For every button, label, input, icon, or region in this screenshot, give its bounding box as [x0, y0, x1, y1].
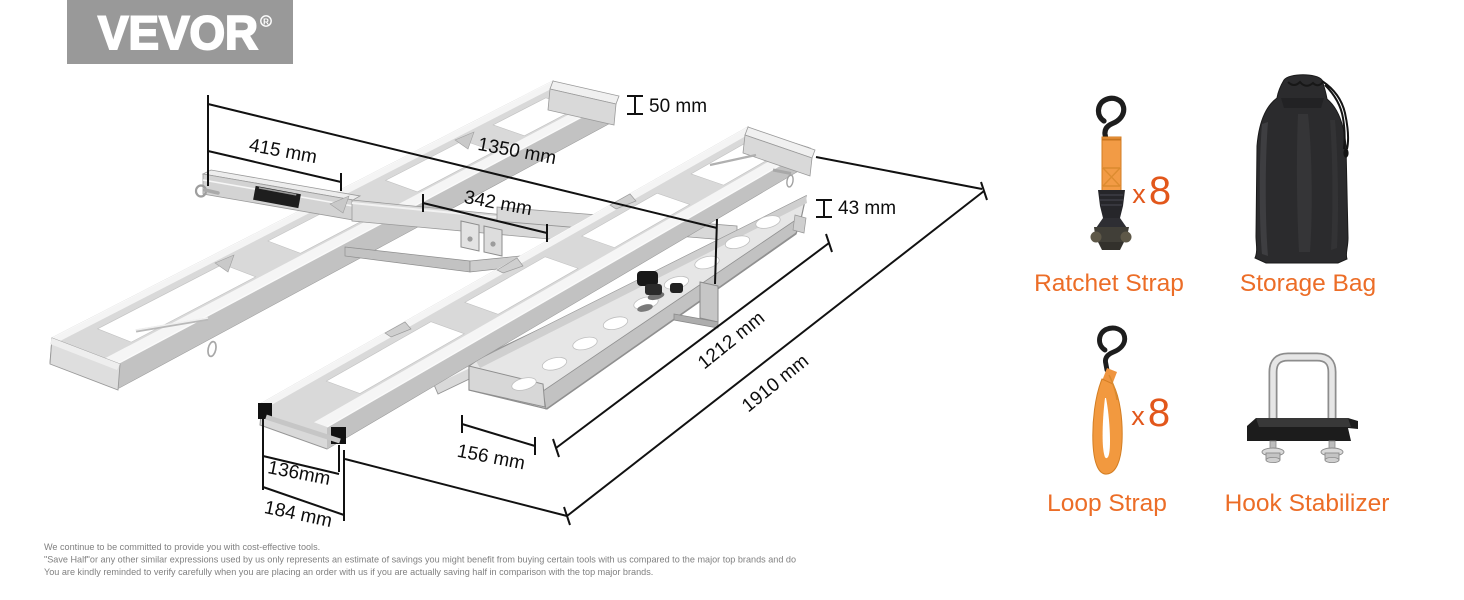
svg-text:50 mm: 50 mm — [649, 96, 707, 117]
svg-text:You are kindly reminded to ver: You are kindly reminded to verify carefu… — [44, 567, 653, 577]
svg-text:"Save Half"or any other simila: "Save Half"or any other similar expressi… — [44, 555, 796, 565]
svg-text:8: 8 — [1149, 169, 1171, 213]
svg-text:x: x — [1132, 179, 1146, 209]
svg-text:x: x — [1131, 401, 1145, 431]
svg-text:Hook Stabilizer: Hook Stabilizer — [1225, 490, 1390, 517]
svg-text:R: R — [263, 17, 269, 26]
svg-text:43 mm: 43 mm — [838, 198, 896, 219]
svg-text:8: 8 — [1148, 391, 1170, 435]
svg-text:Ratchet Strap: Ratchet Strap — [1034, 270, 1184, 297]
svg-text:VEVOR: VEVOR — [98, 6, 258, 59]
svg-text:We continue to be committed to: We continue to be committed to provide y… — [44, 542, 320, 552]
svg-text:Loop Strap: Loop Strap — [1047, 490, 1167, 517]
svg-text:Storage Bag: Storage Bag — [1240, 270, 1376, 297]
